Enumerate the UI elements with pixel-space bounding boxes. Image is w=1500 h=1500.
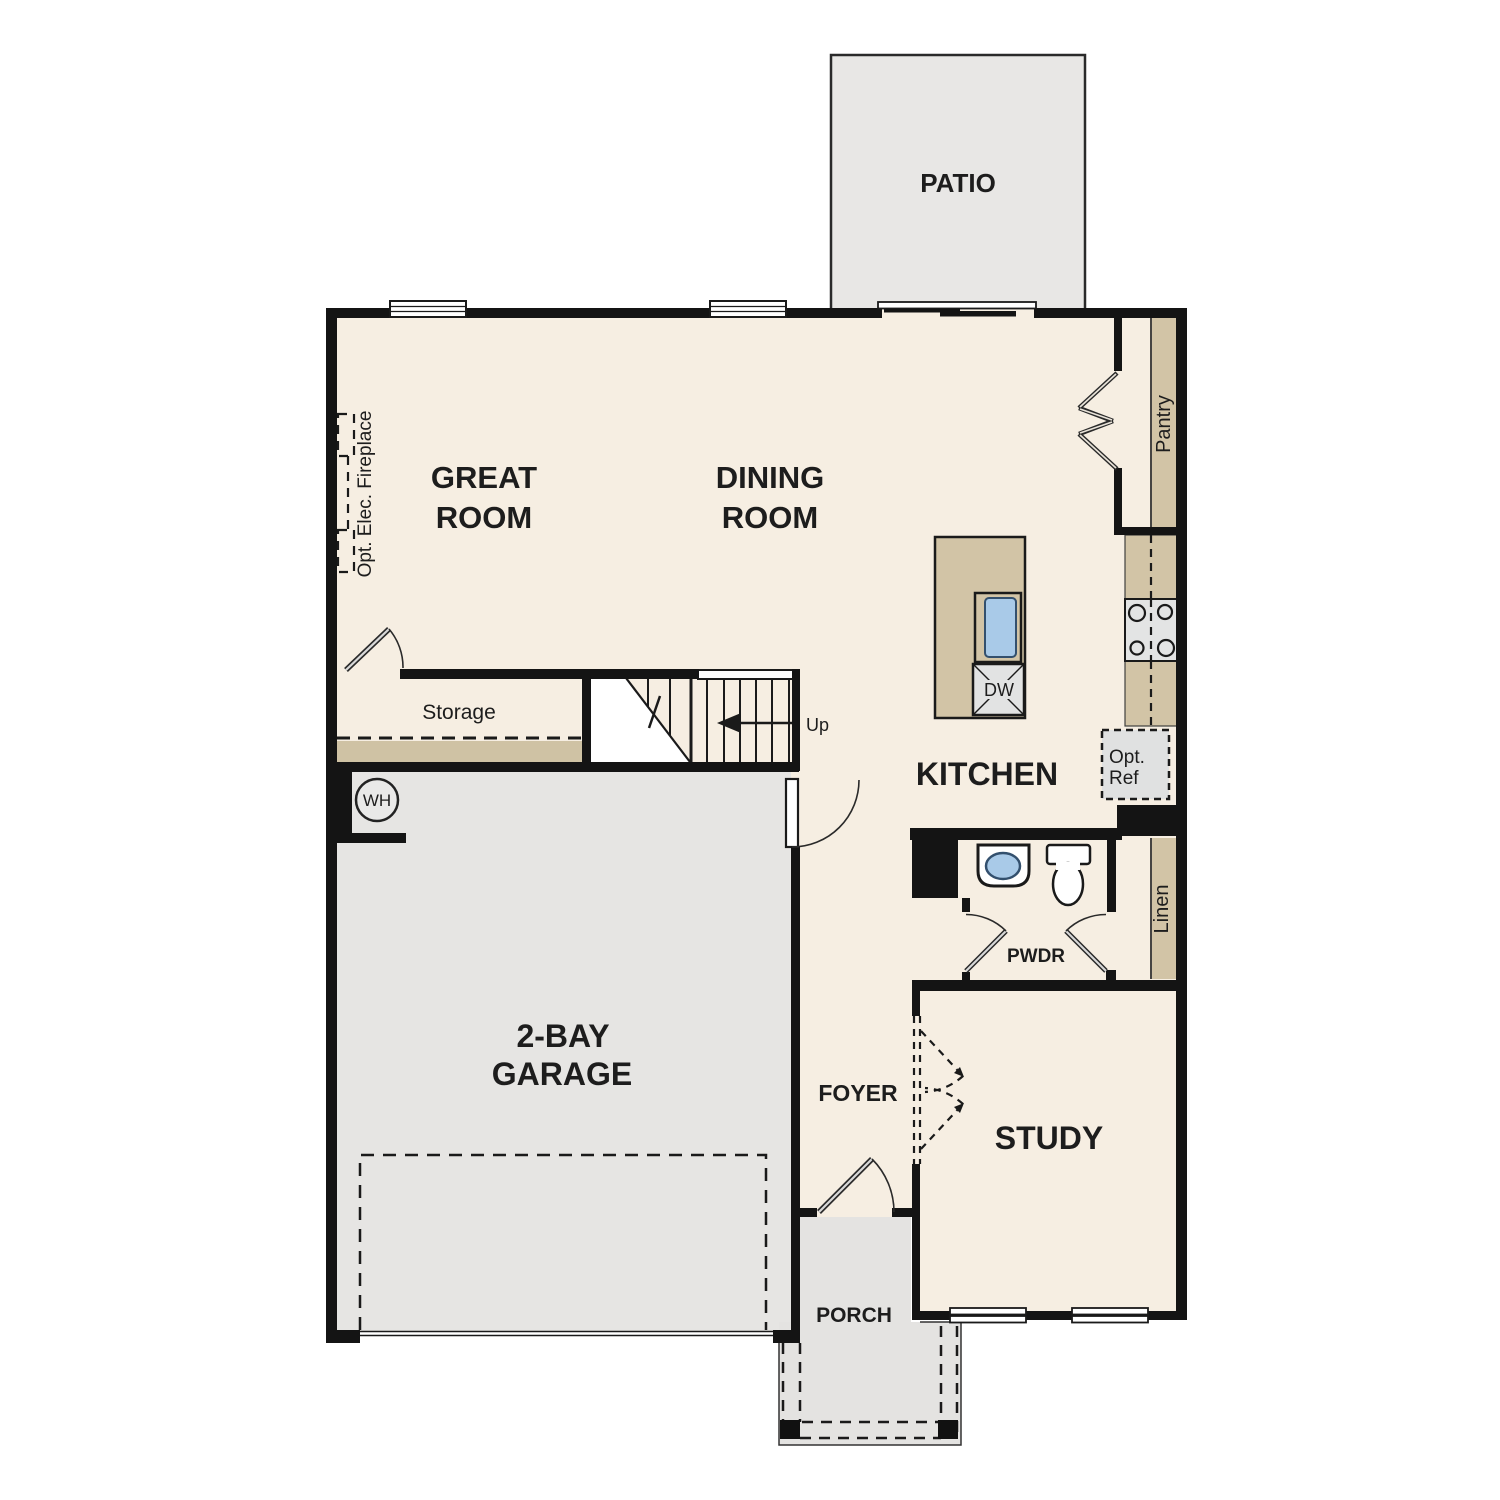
svg-text:Storage: Storage [422, 701, 496, 724]
svg-text:WH: WH [363, 791, 391, 810]
svg-text:Linen: Linen [1151, 885, 1173, 934]
svg-text:2-BAY: 2-BAY [516, 1018, 609, 1054]
svg-text:Up: Up [806, 715, 829, 735]
svg-text:ROOM: ROOM [722, 500, 818, 535]
svg-text:Ref: Ref [1109, 768, 1139, 789]
svg-text:KITCHEN: KITCHEN [916, 756, 1058, 792]
svg-text:Pantry: Pantry [1153, 395, 1175, 453]
svg-text:DINING: DINING [716, 460, 825, 495]
svg-text:Opt.: Opt. [1109, 747, 1145, 768]
svg-text:PORCH: PORCH [816, 1304, 892, 1327]
svg-text:PWDR: PWDR [1007, 946, 1065, 967]
svg-text:STUDY: STUDY [995, 1120, 1103, 1156]
svg-text:DW: DW [984, 680, 1014, 700]
svg-text:FOYER: FOYER [818, 1080, 898, 1106]
svg-text:Opt. Elec. Fireplace: Opt. Elec. Fireplace [355, 411, 376, 578]
svg-text:GREAT: GREAT [431, 460, 537, 495]
svg-text:PATIO: PATIO [920, 168, 996, 198]
svg-text:GARAGE: GARAGE [492, 1056, 632, 1092]
svg-text:ROOM: ROOM [436, 500, 532, 535]
